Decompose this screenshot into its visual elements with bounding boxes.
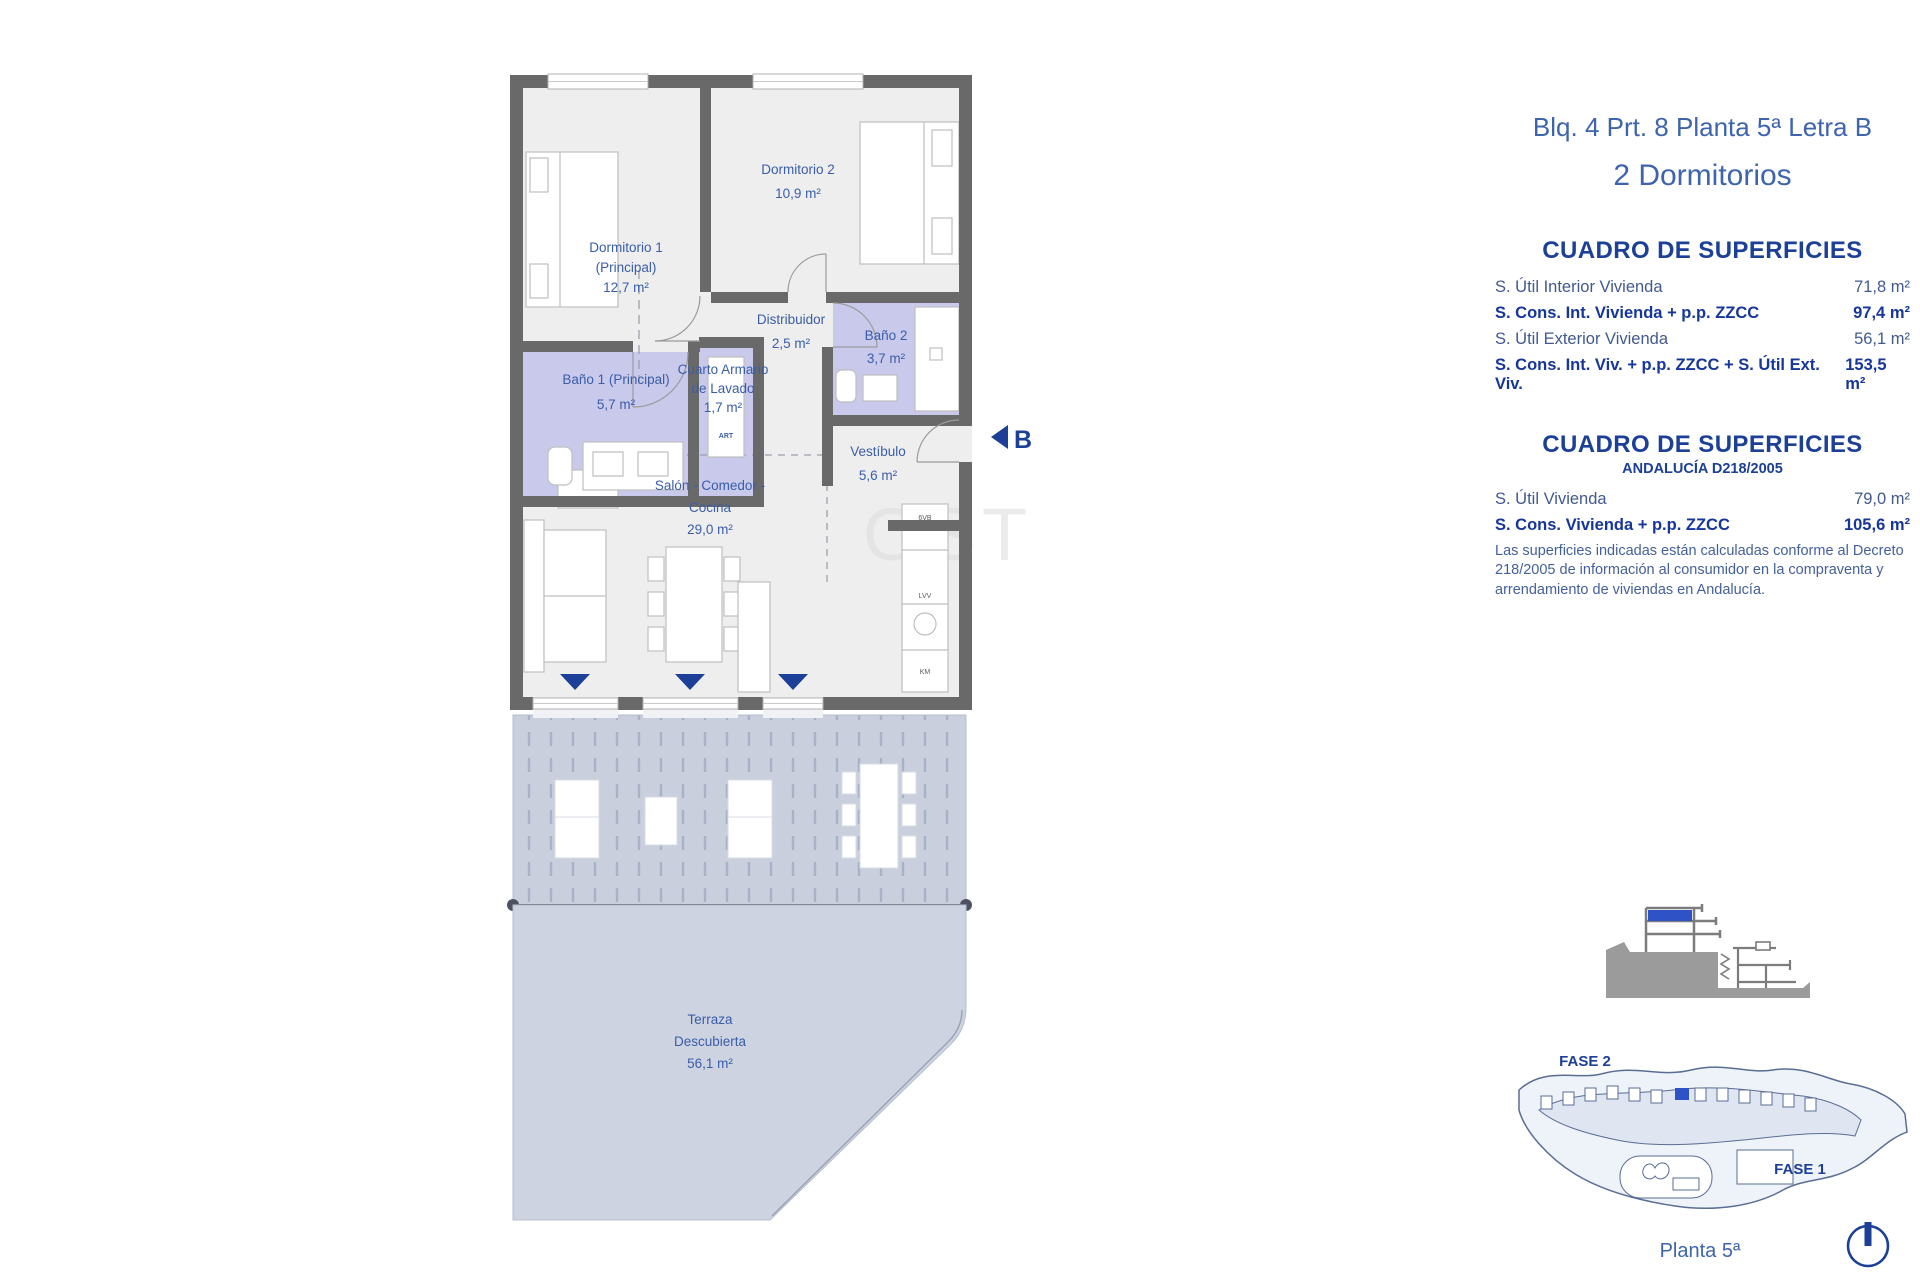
surfaces-table: S. Útil Interior Vivienda 71,8 m² S. Con… <box>1495 274 1910 397</box>
label-lavado-tag: ART <box>719 433 734 440</box>
surfaces-table-title: CUADRO DE SUPERFICIES <box>1495 237 1910 265</box>
table-row: S. Útil Exterior Vivienda 56,1 m² <box>1495 326 1910 352</box>
bed-dorm2 <box>860 122 959 264</box>
label-bano2-area: 3,7 m² <box>867 351 906 366</box>
label-bano1: Baño 1 (Principal) <box>562 372 669 387</box>
andalucia-table-title: CUADRO DE SUPERFICIES <box>1495 431 1910 459</box>
fase2-label: FASE 2 <box>1559 1053 1611 1070</box>
label-salon: Salón - Comedor - <box>655 478 765 493</box>
table-row: S. Útil Interior Vivienda 71,8 m² <box>1495 274 1910 300</box>
floor-plan: OST <box>408 52 1064 1242</box>
fase1-label: FASE 1 <box>1774 1161 1826 1178</box>
entrance-marker: B <box>991 425 1032 454</box>
row-value: 105,6 m² <box>1844 516 1910 535</box>
row-label: S. Útil Vivienda <box>1495 490 1607 509</box>
legal-note: Las superficies indicadas están calculad… <box>1495 542 1910 600</box>
unit-subtitle: 2 Dormitorios <box>1495 159 1910 193</box>
label-terraza-2: Descubierta <box>674 1034 747 1049</box>
label-distribuidor: Distribuidor <box>757 312 826 327</box>
label-bano1-area: 5,7 m² <box>597 397 636 412</box>
kitchen-island <box>738 582 770 692</box>
unit-title: Blq. 4 Prt. 8 Planta 5ª Letra B <box>1495 112 1910 143</box>
table-row: S. Cons. Int. Viv. + p.p. ZZCC + S. Útil… <box>1495 352 1910 397</box>
label-dorm2-area: 10,9 m² <box>775 186 821 201</box>
toilet-2 <box>836 370 856 402</box>
entrance-letter: B <box>1014 426 1032 454</box>
label-terraza: Terraza <box>687 1012 733 1027</box>
sink-2 <box>863 375 897 401</box>
covered-terrace <box>507 715 972 914</box>
terrain <box>1606 942 1810 998</box>
andalucia-table: S. Útil Vivienda 79,0 m² S. Cons. Vivien… <box>1495 486 1910 538</box>
open-terrace <box>513 905 966 1220</box>
appliance-label-top: 6VB <box>918 515 932 522</box>
label-vestibulo: Vestíbulo <box>850 444 906 459</box>
label-lavado-area: 1,7 m² <box>704 400 743 415</box>
building-section-diagram <box>1598 886 1838 1016</box>
label-terraza-area: 56,1 m² <box>687 1056 733 1071</box>
label-dorm2: Dormitorio 2 <box>761 162 835 177</box>
appliance-label-mid: LVV <box>919 593 932 600</box>
row-label: S. Útil Interior Vivienda <box>1495 278 1663 297</box>
label-dorm1-2: (Principal) <box>596 260 657 275</box>
label-bano2: Baño 2 <box>865 328 908 343</box>
page: OST <box>0 0 1920 1280</box>
north-arrow-icon <box>1842 1214 1894 1270</box>
label-distribuidor-area: 2,5 m² <box>772 336 811 351</box>
entrance-arrow-icon <box>991 425 1008 449</box>
dining-table <box>648 547 740 662</box>
planta-label: Planta 5ª <box>1600 1240 1800 1263</box>
row-label: S. Cons. Int. Vivienda + p.p. ZZCC <box>1495 304 1759 323</box>
row-value: 97,4 m² <box>1853 304 1910 323</box>
label-salon-2: Cocina <box>689 500 732 515</box>
toilet-1 <box>548 447 572 485</box>
label-salon-area: 29,0 m² <box>687 522 733 537</box>
row-label: S. Cons. Vivienda + p.p. ZZCC <box>1495 516 1730 535</box>
label-lavado: Cuarto Armario <box>678 362 769 377</box>
stairs <box>1721 954 1729 979</box>
table-row: S. Cons. Vivienda + p.p. ZZCC 105,6 m² <box>1495 512 1910 538</box>
table-row: S. Útil Vivienda 79,0 m² <box>1495 486 1910 512</box>
label-dorm1: Dormitorio 1 <box>589 240 663 255</box>
row-label: S. Cons. Int. Viv. + p.p. ZZCC + S. Útil… <box>1495 356 1845 394</box>
row-value: 71,8 m² <box>1854 278 1910 297</box>
label-dorm1-area: 12,7 m² <box>603 280 649 295</box>
highlighted-floor <box>1648 910 1692 921</box>
row-value: 79,0 m² <box>1854 490 1910 509</box>
appliance-label-bot: KM <box>920 669 931 676</box>
table-row: S. Cons. Int. Vivienda + p.p. ZZCC 97,4 … <box>1495 300 1910 326</box>
thresholds <box>533 710 823 718</box>
row-value: 56,1 m² <box>1854 330 1910 349</box>
andalucia-table-subtitle: ANDALUCÍA D218/2005 <box>1495 461 1910 477</box>
label-vestibulo-area: 5,6 m² <box>859 468 898 483</box>
row-value: 153,5 m² <box>1845 356 1910 394</box>
highlighted-unit <box>1675 1088 1689 1100</box>
label-lavado-2: de Lavado <box>691 381 754 396</box>
lower-floors <box>1721 942 1796 988</box>
info-panel: Blq. 4 Prt. 8 Planta 5ª Letra B 2 Dormit… <box>1495 112 1910 600</box>
row-label: S. Útil Exterior Vivienda <box>1495 330 1668 349</box>
